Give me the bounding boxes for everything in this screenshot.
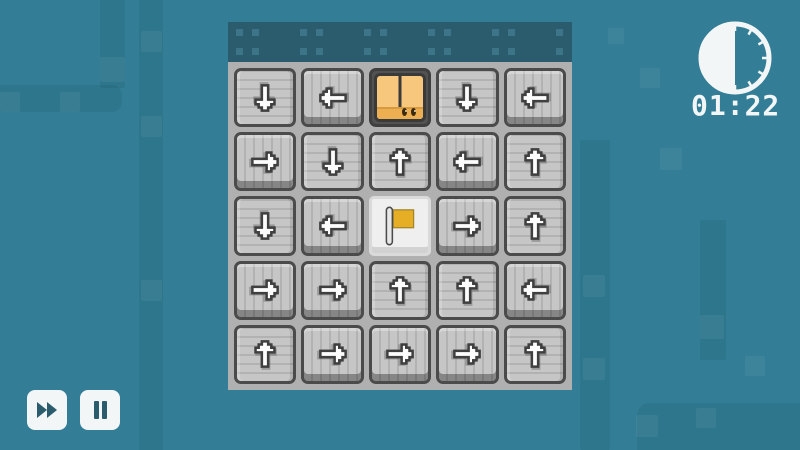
arrow-right-icon [452, 211, 482, 241]
pause-icon [93, 401, 108, 419]
player-eye-left [402, 108, 407, 116]
tile-player [369, 68, 431, 127]
timer-clock [697, 20, 773, 96]
tile-arrow-right[interactable] [436, 196, 498, 255]
arrow-up-icon [520, 339, 550, 369]
box-face [377, 107, 423, 119]
tile-arrow-up[interactable] [234, 325, 296, 384]
arrow-up-icon [250, 339, 280, 369]
arrow-right-icon [318, 339, 348, 369]
tile-arrow-down[interactable] [301, 132, 363, 191]
bg-decoration [583, 358, 605, 380]
bg-decoration [141, 31, 162, 52]
arrow-up-icon [452, 275, 482, 305]
bg-decoration [637, 403, 800, 450]
bg-decoration [640, 68, 660, 88]
arrow-right-icon [385, 339, 415, 369]
flag-icon [383, 206, 417, 246]
tile-arrow-up[interactable] [504, 132, 566, 191]
arrow-up-icon [385, 275, 415, 305]
tile-arrow-right[interactable] [301, 325, 363, 384]
tile-arrow-right[interactable] [436, 325, 498, 384]
bg-decoration [60, 92, 80, 112]
arrow-down-icon [452, 83, 482, 113]
tile-arrow-up[interactable] [369, 261, 431, 320]
arrow-right-icon [250, 147, 280, 177]
arrow-left-icon [452, 147, 482, 177]
bg-decoration [141, 280, 162, 301]
tile-arrow-down[interactable] [234, 196, 296, 255]
puzzle-board [228, 22, 572, 390]
arrow-right-icon [452, 339, 482, 369]
tile-arrow-up[interactable] [436, 261, 498, 320]
arrow-left-icon [520, 275, 550, 305]
fast-forward-icon [36, 401, 58, 419]
arrow-down-icon [250, 83, 280, 113]
clock-half-icon [697, 20, 773, 96]
arrow-left-icon [318, 211, 348, 241]
bg-decoration [700, 315, 724, 339]
bg-decoration [696, 408, 716, 428]
tile-arrow-right[interactable] [234, 132, 296, 191]
arrow-down-icon [250, 211, 280, 241]
bg-decoration [636, 415, 658, 437]
box-flap-seam-icon [398, 76, 401, 107]
tile-arrow-left[interactable] [301, 68, 363, 127]
tile-arrow-left[interactable] [301, 196, 363, 255]
tile-arrow-right[interactable] [301, 261, 363, 320]
arrow-up-icon [520, 147, 550, 177]
arrow-right-icon [250, 275, 280, 305]
player-eye-right [411, 108, 416, 116]
tile-arrow-up[interactable] [504, 196, 566, 255]
arrow-right-icon [318, 275, 348, 305]
arrow-up-icon [520, 211, 550, 241]
board-header-bar [228, 22, 572, 62]
tile-arrow-right[interactable] [234, 261, 296, 320]
bg-decoration [0, 92, 20, 112]
bg-decoration [745, 356, 765, 376]
bg-decoration [100, 57, 125, 82]
bg-decoration [660, 148, 682, 170]
tile-goal-flag [369, 196, 431, 255]
tile-arrow-up[interactable] [369, 132, 431, 191]
bg-decoration [583, 275, 605, 297]
bg-decoration [608, 28, 624, 44]
tile-arrow-down[interactable] [436, 68, 498, 127]
arrow-down-icon [318, 147, 348, 177]
tile-arrow-left[interactable] [504, 68, 566, 127]
arrow-left-icon [318, 83, 348, 113]
tile-arrow-left[interactable] [436, 132, 498, 191]
fast-forward-button[interactable] [27, 390, 67, 430]
player-box-character [374, 73, 426, 122]
arrow-up-icon [385, 147, 415, 177]
tile-arrow-right[interactable] [369, 325, 431, 384]
bg-decoration [139, 0, 163, 450]
tile-arrow-down[interactable] [234, 68, 296, 127]
tile-arrow-up[interactable] [504, 325, 566, 384]
arrow-left-icon [520, 83, 550, 113]
bg-decoration [141, 116, 162, 137]
pause-button[interactable] [80, 390, 120, 430]
tile-arrow-left[interactable] [504, 261, 566, 320]
board-grid [228, 62, 572, 390]
bg-decoration [700, 220, 726, 360]
timer-text: 01:22 [691, 89, 779, 122]
